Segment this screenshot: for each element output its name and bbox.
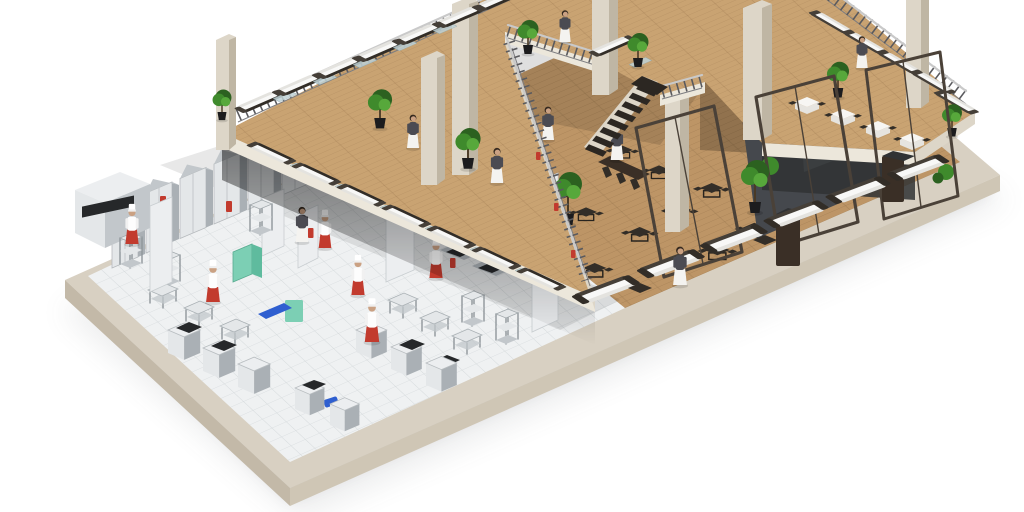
column: [421, 51, 445, 185]
teal-machine: [285, 300, 303, 322]
column: [743, 0, 772, 140]
red-panel: [308, 228, 314, 238]
restaurant-3d-render: Two-storey restaurant interior: open com…: [0, 0, 1024, 512]
red-panel: [226, 201, 232, 212]
render-canvas: Two-storey restaurant interior: open com…: [0, 0, 1024, 512]
